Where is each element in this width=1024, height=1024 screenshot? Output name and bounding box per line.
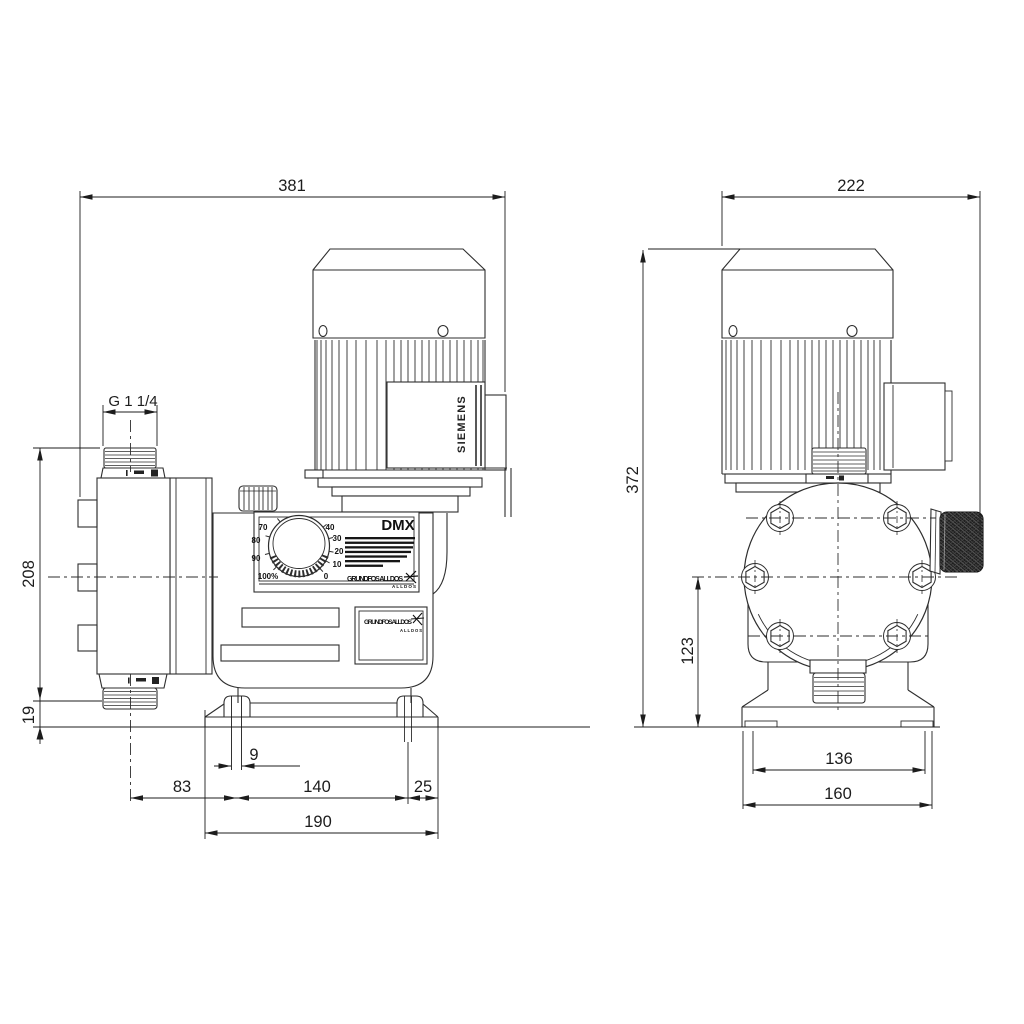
logo-x-icon bbox=[411, 613, 424, 625]
head-bolt-lug bbox=[78, 500, 97, 527]
knob-scale-label-100: 100% bbox=[258, 572, 278, 581]
knob-scale-label-20: 20 bbox=[335, 547, 344, 556]
model-label: DMX bbox=[381, 517, 414, 534]
fan-cover-screw-icon bbox=[438, 326, 448, 337]
nameplate: GRUNDFOS ALLDOS ALLDOS bbox=[355, 607, 427, 664]
logo-sub-label: ALLDOS bbox=[400, 628, 422, 633]
side-view: SIEMENS bbox=[48, 249, 511, 804]
motor-rear-housing bbox=[485, 395, 506, 470]
knob-scale-label-30: 30 bbox=[333, 534, 342, 543]
body-slot bbox=[242, 608, 339, 627]
body-slot bbox=[221, 645, 339, 661]
fan-cover-screw-icon bbox=[847, 326, 857, 337]
vent-valve-knob[interactable] bbox=[930, 509, 983, 574]
fan-cover-screw-icon bbox=[319, 326, 327, 337]
base-foot-side bbox=[205, 688, 438, 742]
dim-port-to-base: 19 bbox=[20, 706, 38, 724]
logo-wordmark: GRUNDFOS ALLDOS bbox=[364, 619, 413, 626]
foot-slot bbox=[901, 721, 933, 727]
dim-slot-width: 9 bbox=[249, 746, 258, 764]
knob-scale-label-10: 10 bbox=[333, 560, 342, 569]
dim-overall-height: 372 bbox=[624, 466, 642, 494]
dim-overall-width-end: 222 bbox=[837, 177, 865, 195]
motor-fan-cover-end bbox=[722, 249, 893, 338]
valve-markings bbox=[128, 677, 159, 684]
knob-scale-label-90: 90 bbox=[252, 554, 261, 563]
dim-port-center-to-slot: 83 bbox=[173, 778, 191, 796]
knob-scale-label-0: 0 bbox=[324, 572, 329, 581]
knob-scale-label-40: 40 bbox=[326, 523, 335, 532]
foot-slot bbox=[745, 721, 777, 727]
fan-cover-screw-icon bbox=[729, 326, 737, 337]
dim-slot-spacing-side: 140 bbox=[303, 778, 331, 796]
dim-port-height: 208 bbox=[20, 560, 38, 588]
rear-bracket-lines bbox=[505, 468, 511, 517]
logo-wordmark: GRUNDFOS ALLDOS bbox=[347, 576, 403, 583]
end-view bbox=[692, 249, 983, 727]
dim-overall-width-side: 381 bbox=[278, 177, 306, 195]
motor-brand-label: SIEMENS bbox=[456, 395, 468, 453]
motor-terminal-box-end bbox=[884, 383, 952, 470]
head-bolt-lug bbox=[78, 625, 97, 651]
knob-scale-label-70: 70 bbox=[259, 523, 268, 532]
knob-scale-label-80: 80 bbox=[252, 536, 261, 545]
dim-slot-spacing-end: 136 bbox=[825, 750, 853, 768]
dim-base-width-end: 160 bbox=[824, 785, 852, 803]
suction-discharge-port bbox=[104, 448, 156, 468]
dim-slot-to-edge: 25 bbox=[414, 778, 432, 796]
motor-fan-cover-side bbox=[313, 249, 485, 338]
dim-base-width-side: 190 bbox=[304, 813, 332, 831]
head-bolt-lug bbox=[78, 564, 97, 591]
technical-drawing-page: SIEMENS bbox=[0, 0, 1024, 1024]
logo-sub-label: ALLDOS bbox=[392, 584, 416, 589]
dim-port-thread: G 1 1/4 bbox=[108, 393, 157, 410]
dim-head-center-height: 123 bbox=[679, 637, 697, 665]
capacity-knob[interactable] bbox=[269, 516, 330, 577]
dosing-head-side bbox=[78, 448, 212, 709]
dmx-pump-dimensional-drawing: SIEMENS bbox=[0, 0, 1024, 1024]
top-port-end bbox=[806, 448, 868, 483]
